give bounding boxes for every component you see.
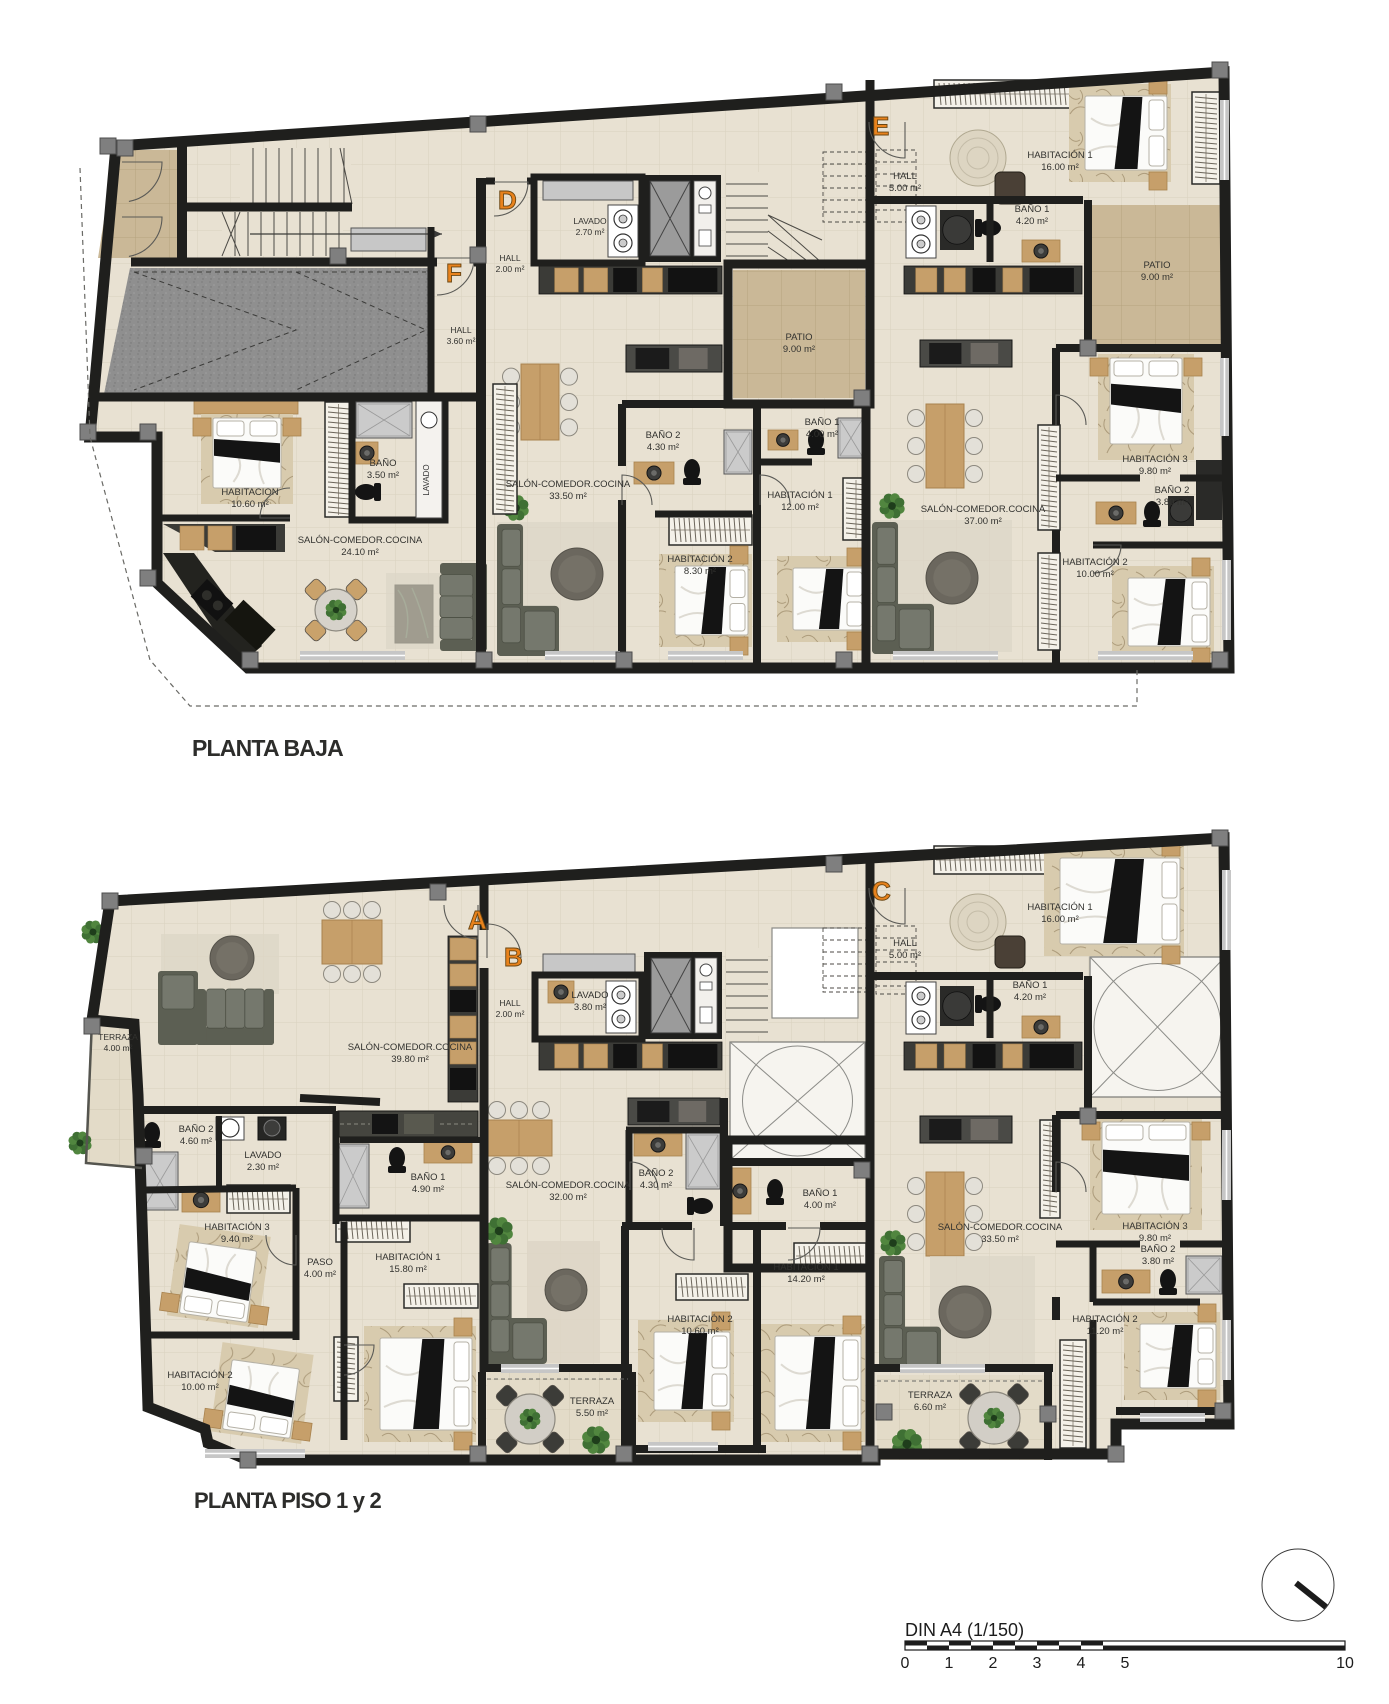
svg-text:10.00 m²: 10.00 m²: [181, 1382, 219, 1393]
svg-text:HABITACIÓN 1: HABITACIÓN 1: [375, 1252, 440, 1263]
svg-text:HABITACIÓN 1: HABITACIÓN 1: [1027, 150, 1092, 161]
svg-text:3.50 m²: 3.50 m²: [367, 470, 399, 481]
svg-text:HABITACIÓN 3: HABITACIÓN 3: [1122, 454, 1187, 465]
svg-text:BAÑO 1: BAÑO 1: [805, 417, 840, 428]
svg-text:HABITACIÓN 2: HABITACIÓN 2: [1062, 557, 1127, 568]
svg-text:E: E: [872, 111, 889, 141]
svg-text:24.10 m²: 24.10 m²: [341, 547, 379, 558]
svg-text:HABITACIÓN 1: HABITACIÓN 1: [1027, 902, 1092, 913]
svg-text:HABITACION: HABITACION: [221, 487, 278, 498]
svg-text:3: 3: [1033, 1655, 1042, 1672]
svg-text:HABITACIÓN 2: HABITACIÓN 2: [667, 1314, 732, 1325]
svg-text:16.00 m²: 16.00 m²: [1041, 914, 1079, 925]
svg-text:33.50 m²: 33.50 m²: [981, 1234, 1019, 1245]
svg-text:2: 2: [989, 1655, 998, 1672]
svg-text:BAÑO 2: BAÑO 2: [179, 1124, 214, 1135]
svg-text:HABITACIÓN 3: HABITACIÓN 3: [1122, 1221, 1187, 1232]
svg-text:BAÑO 2: BAÑO 2: [646, 430, 681, 441]
svg-text:11.20 m²: 11.20 m²: [1087, 1326, 1124, 1337]
svg-text:BAÑO 2: BAÑO 2: [639, 1168, 674, 1179]
svg-text:3.80 m²: 3.80 m²: [1142, 1256, 1174, 1267]
svg-text:TERRAZA: TERRAZA: [570, 1396, 615, 1407]
svg-text:HALL: HALL: [893, 171, 917, 182]
svg-text:9.40 m²: 9.40 m²: [221, 1234, 253, 1245]
svg-text:BAÑO 1: BAÑO 1: [411, 1172, 446, 1183]
svg-text:2.00 m²: 2.00 m²: [496, 264, 525, 274]
svg-text:16.00 m²: 16.00 m²: [1041, 162, 1079, 173]
svg-text:4.30 m²: 4.30 m²: [647, 442, 679, 453]
svg-text:10.00 m²: 10.00 m²: [1076, 569, 1114, 580]
svg-text:BAÑO: BAÑO: [370, 458, 397, 469]
svg-text:SALÓN-COMEDOR.COCINA: SALÓN-COMEDOR.COCINA: [348, 1042, 473, 1053]
svg-text:BAÑO 1: BAÑO 1: [803, 1188, 838, 1199]
svg-text:HALL: HALL: [893, 938, 917, 949]
svg-text:12.00 m²: 12.00 m²: [781, 502, 819, 513]
svg-text:TERRAZA: TERRAZA: [98, 1032, 138, 1042]
svg-text:HALL: HALL: [499, 998, 521, 1008]
svg-text:PASO: PASO: [307, 1257, 333, 1268]
svg-text:A: A: [468, 905, 487, 935]
svg-text:4.90 m²: 4.90 m²: [412, 1184, 444, 1195]
svg-text:DIN A4 (1/150): DIN A4 (1/150): [905, 1620, 1024, 1640]
svg-text:PATIO: PATIO: [1143, 260, 1170, 271]
svg-text:1: 1: [945, 1655, 954, 1672]
svg-text:5.50 m²: 5.50 m²: [576, 1408, 608, 1419]
svg-text:9.00 m²: 9.00 m²: [783, 344, 815, 355]
svg-text:4.00 m²: 4.00 m²: [806, 429, 838, 440]
svg-text:SALÓN-COMEDOR.COCINA: SALÓN-COMEDOR.COCINA: [298, 535, 423, 546]
svg-text:LAVADO: LAVADO: [244, 1150, 281, 1161]
svg-text:B: B: [504, 942, 523, 972]
svg-text:32.00 m²: 32.00 m²: [549, 1192, 587, 1203]
svg-text:BAÑO 2: BAÑO 2: [1141, 1244, 1176, 1255]
svg-text:4.60 m²: 4.60 m²: [180, 1136, 212, 1147]
svg-text:0: 0: [901, 1655, 910, 1672]
svg-text:33.50 m²: 33.50 m²: [549, 491, 587, 502]
svg-text:39.80 m²: 39.80 m²: [391, 1054, 429, 1065]
svg-text:4.00 m²: 4.00 m²: [304, 1269, 336, 1280]
svg-text:14.20 m²: 14.20 m²: [787, 1274, 825, 1285]
svg-text:SALÓN-COMEDOR.COCINA: SALÓN-COMEDOR.COCINA: [921, 504, 1046, 515]
svg-text:BAÑO 2: BAÑO 2: [1155, 485, 1190, 496]
svg-text:2.30 m²: 2.30 m²: [247, 1162, 279, 1173]
svg-text:C: C: [872, 876, 891, 906]
svg-text:4.30 m²: 4.30 m²: [640, 1180, 672, 1191]
svg-text:HABITACIÓN 2: HABITACIÓN 2: [667, 554, 732, 565]
svg-text:PATIO: PATIO: [785, 332, 812, 343]
svg-text:3.80 m²: 3.80 m²: [1156, 497, 1188, 508]
svg-text:SALÓN-COMEDOR.COCINA: SALÓN-COMEDOR.COCINA: [506, 479, 631, 490]
svg-text:10.60 m²: 10.60 m²: [681, 1326, 719, 1337]
svg-text:3.60 m²: 3.60 m²: [447, 336, 476, 346]
svg-text:9.80 m²: 9.80 m²: [1139, 466, 1171, 477]
svg-text:9.00 m²: 9.00 m²: [1141, 272, 1173, 283]
svg-text:2.70 m²: 2.70 m²: [576, 227, 605, 237]
svg-text:HABITACIÓN 2: HABITACIÓN 2: [1072, 1314, 1137, 1325]
svg-text:10.60 m²: 10.60 m²: [231, 499, 269, 510]
svg-text:6.60 m²: 6.60 m²: [914, 1402, 946, 1413]
svg-text:37.00 m²: 37.00 m²: [964, 516, 1002, 527]
svg-text:HALL: HALL: [450, 325, 472, 335]
svg-text:F: F: [446, 258, 462, 288]
svg-text:9.80 m²: 9.80 m²: [1139, 1233, 1171, 1244]
svg-text:LAVADO: LAVADO: [573, 216, 607, 226]
svg-text:PLANTA PISO 1 y 2: PLANTA PISO 1 y 2: [194, 1488, 381, 1513]
svg-text:HABITACIÓN 1: HABITACIÓN 1: [767, 490, 832, 501]
svg-text:HABITACIÓN 2: HABITACIÓN 2: [167, 1370, 232, 1381]
svg-text:D: D: [498, 185, 517, 215]
svg-text:4.20 m²: 4.20 m²: [1016, 216, 1048, 227]
svg-text:4.20 m²: 4.20 m²: [1014, 992, 1046, 1003]
svg-text:8.30 m²: 8.30 m²: [684, 566, 716, 577]
svg-text:HABITACIÓN 3: HABITACIÓN 3: [204, 1222, 269, 1233]
svg-text:5.00 m²: 5.00 m²: [889, 183, 921, 194]
svg-text:HALL: HALL: [499, 253, 521, 263]
svg-text:TERRAZA: TERRAZA: [908, 1390, 953, 1401]
svg-text:4: 4: [1077, 1655, 1086, 1672]
svg-text:PLANTA BAJA: PLANTA BAJA: [192, 735, 343, 761]
svg-text:LAVADO: LAVADO: [422, 464, 431, 495]
svg-text:10: 10: [1336, 1655, 1354, 1672]
svg-text:BAÑO 1: BAÑO 1: [1015, 204, 1050, 215]
svg-text:SALÓN-COMEDOR.COCINA: SALÓN-COMEDOR.COCINA: [506, 1180, 631, 1191]
svg-text:HABITACIÓN 1: HABITACIÓN 1: [773, 1262, 838, 1273]
svg-text:5.00 m²: 5.00 m²: [889, 950, 921, 961]
svg-text:SALÓN-COMEDOR.COCINA: SALÓN-COMEDOR.COCINA: [938, 1222, 1063, 1233]
svg-text:3.80 m²: 3.80 m²: [574, 1002, 606, 1013]
svg-text:4.00 m²: 4.00 m²: [804, 1200, 836, 1211]
svg-text:5: 5: [1121, 1655, 1130, 1672]
svg-text:LAVADO: LAVADO: [571, 990, 608, 1001]
svg-text:4.00 m²: 4.00 m²: [104, 1043, 133, 1053]
svg-text:2.00 m²: 2.00 m²: [496, 1009, 525, 1019]
svg-text:15.80 m²: 15.80 m²: [389, 1264, 427, 1275]
svg-text:BAÑO 1: BAÑO 1: [1013, 980, 1048, 991]
